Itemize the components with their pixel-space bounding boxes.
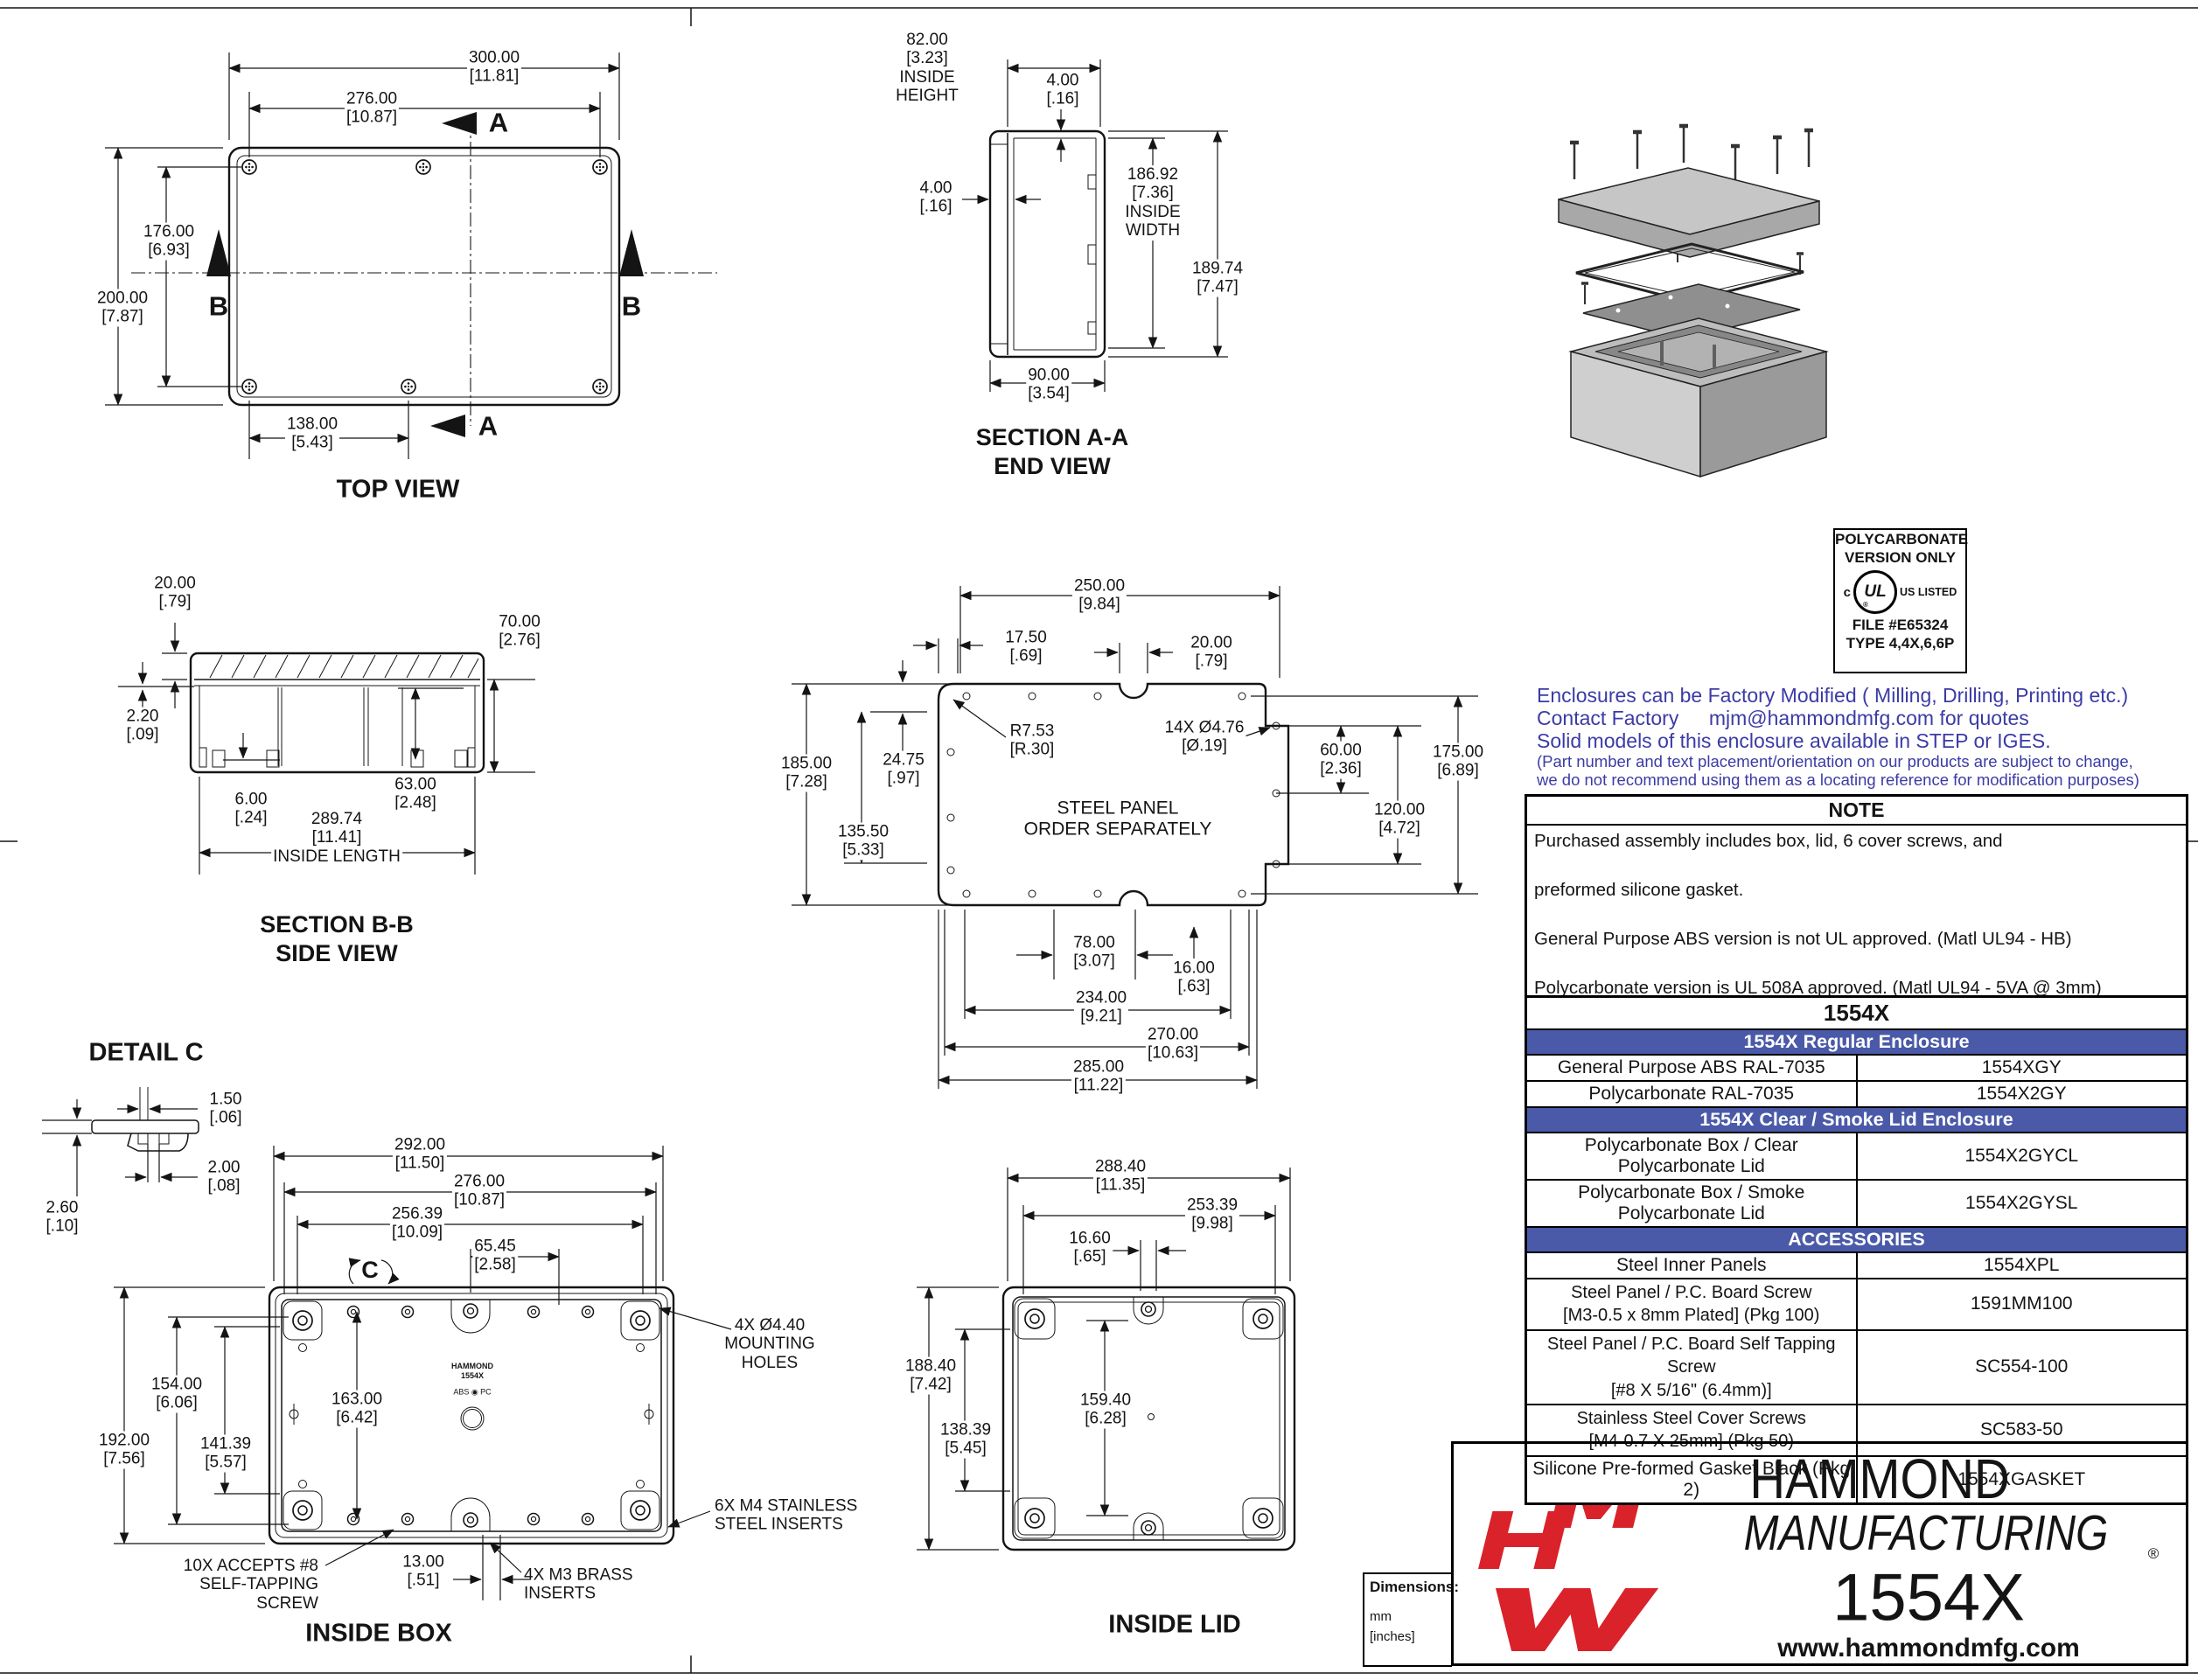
note-header: NOTE	[1527, 797, 2186, 826]
box-dim-13: 13.00 [.51]	[401, 1553, 446, 1591]
brand-manufacturing: MANUFACTURING	[1744, 1504, 2109, 1562]
ul-letters: UL	[1864, 582, 1886, 602]
part-desc: Steel Panel / P.C. Board Screw [M3-0.5 x…	[1526, 1279, 1857, 1330]
panel-dim-24-75: 24.75 [.97]	[881, 751, 926, 789]
ul-line1: POLYCARBONATE	[1835, 530, 1965, 548]
factory-modified-note: Enclosures can be Factory Modified ( Mil…	[1537, 684, 2191, 789]
lid-dim-16-6: 16.60 [.65]	[1067, 1230, 1113, 1267]
brand-product-number: 1554X	[1832, 1560, 2025, 1636]
detail-c-dim-2-6: 2.60 [.10]	[45, 1199, 80, 1237]
factory-note-line5: we do not recommend using them as a loca…	[1537, 770, 2191, 789]
panel-dim-285: 285.00 [11.22]	[1071, 1058, 1126, 1096]
top-view-dim-200: 200.00 [7.87]	[95, 289, 150, 327]
box-dim-154: 154.00 [6.06]	[150, 1376, 204, 1413]
box-molded-material: ABS ◉ PC	[451, 1388, 492, 1398]
aa-dim-depth: 90.00 [3.54]	[1026, 366, 1071, 404]
section-mark-b: B	[620, 290, 643, 321]
part-number: 1554X2GYSL	[1857, 1180, 2188, 1227]
detail-mark-c: C	[359, 1257, 380, 1284]
bb-dim-inside-length: 289.74 [11.41] INSIDE LENGTH	[271, 810, 402, 866]
lid-dim-253: 253.39 [9.98]	[1185, 1196, 1239, 1234]
exploded-view-drawing	[1559, 126, 1826, 477]
box-dim-141: 141.39 [5.57]	[199, 1435, 253, 1473]
callout-mounting-holes: 4X Ø4.40 MOUNTING HOLES	[722, 1316, 816, 1372]
factory-note-line4: (Part number and text placement/orientat…	[1537, 752, 2191, 770]
part-number: 1554X2GYCL	[1857, 1133, 2188, 1180]
panel-dim-185: 185.00 [7.28]	[779, 755, 834, 792]
lid-dim-188: 188.40 [7.42]	[904, 1357, 958, 1395]
top-view-dim-176: 176.00 [6.93]	[142, 223, 196, 261]
datasheet-page: .o{stroke:#141414;stroke-width:2.4;fill:…	[0, 0, 2198, 1680]
panel-dim-78: 78.00 [3.07]	[1071, 934, 1117, 972]
part-desc: Polycarbonate Box / Smoke Polycarbonate …	[1526, 1180, 1857, 1227]
ul-file: FILE #E65324	[1835, 616, 1965, 634]
ul-c: c	[1844, 585, 1851, 600]
panel-dim-radius: R7.53 [R.30]	[1008, 722, 1057, 760]
box-dim-276: 276.00 [10.87]	[452, 1173, 506, 1210]
box-dim-256: 256.39 [10.09]	[390, 1205, 444, 1243]
inside-box-title: INSIDE BOX	[304, 1620, 454, 1649]
lid-dim-159: 159.40 [6.28]	[1078, 1391, 1133, 1429]
aa-dim-inside-width: 186.92 [7.36] INSIDE WIDTH	[1123, 165, 1182, 240]
aa-dim-inside-height: 82.00 [3.23] INSIDE HEIGHT	[894, 31, 960, 106]
callout-m4-inserts: 6X M4 STAINLESS STEEL INSERTS	[713, 1497, 859, 1535]
detail-c-dim-2: 2.00 [.08]	[206, 1159, 242, 1196]
dimensions-title: Dimensions:	[1370, 1579, 1447, 1596]
part-number-table: 1554X 1554X Regular Enclosure General Pu…	[1525, 995, 2188, 1505]
panel-dim-16: 16.00 [.63]	[1171, 959, 1217, 997]
panel-dim-20: 20.00 [.79]	[1189, 634, 1234, 672]
panel-dim-120: 120.00 [4.72]	[1372, 801, 1427, 839]
note-line2: preformed silicone gasket.	[1534, 880, 1743, 900]
inside-lid-title: INSIDE LID	[1106, 1611, 1242, 1640]
section-mark-b: B	[207, 290, 230, 321]
bb-dim-inner-height: 63.00 [2.48]	[393, 776, 438, 813]
top-view-dim-276: 276.00 [10.87]	[345, 90, 399, 128]
callout-m3-inserts: 4X M3 BRASS INSERTS	[522, 1566, 635, 1604]
section-aa-subtitle: END VIEW	[992, 453, 1113, 480]
top-view-dim-138: 138.00 [5.43]	[285, 415, 339, 453]
factory-note-line2: Contact Factory mjm@hammondmfg.com for q…	[1537, 707, 2191, 729]
panel-dim-270: 270.00 [10.63]	[1146, 1026, 1200, 1063]
parts-section-regular: 1554X Regular Enclosure	[1526, 1029, 2188, 1055]
box-dim-192: 192.00 [7.56]	[97, 1432, 151, 1469]
panel-dim-17-5: 17.50 [.69]	[1003, 629, 1049, 666]
dimensions-units-box: Dimensions: mm [inches]	[1363, 1572, 1452, 1667]
top-view-title: TOP VIEW	[335, 476, 462, 505]
panel-dim-175: 175.00 [6.89]	[1431, 743, 1485, 781]
ul-type: TYPE 4,4X,6,6P	[1835, 634, 1965, 652]
box-dim-292: 292.00 [11.50]	[393, 1136, 447, 1174]
aa-dim-overall-width: 189.74 [7.47]	[1190, 260, 1245, 297]
detail-c-dim-1-5: 1.50 [.06]	[208, 1091, 244, 1128]
ul-line2: VERSION ONLY	[1835, 548, 1965, 567]
bb-dim-box-height: 70.00 [2.76]	[497, 613, 542, 651]
box-dim-65: 65.45 [2.58]	[472, 1237, 518, 1275]
dimensions-unit-mm: mm	[1370, 1607, 1447, 1627]
part-desc: Steel Panel / P.C. Board Self Tapping Sc…	[1526, 1330, 1857, 1405]
part-number: 1554XGY	[1857, 1055, 2188, 1081]
section-mark-a: A	[477, 410, 499, 441]
aa-dim-wall-top: 4.00 [.16]	[1045, 72, 1081, 109]
part-number: SC554-100	[1857, 1330, 2188, 1405]
part-number: 1554X2GY	[1857, 1081, 2188, 1107]
callout-self-tapping: 10X ACCEPTS #8 SELF-TAPPING SCREW	[182, 1557, 320, 1613]
panel-dim-60: 60.00 [2.36]	[1318, 742, 1364, 779]
note-body: Purchased assembly includes box, lid, 6 …	[1527, 826, 2186, 1007]
ul-logo-icon: UL®	[1853, 570, 1897, 614]
panel-dim-250: 250.00 [9.84]	[1072, 577, 1127, 615]
box-dim-163: 163.00 [6.42]	[330, 1391, 384, 1428]
bb-dim-gasket: 2.20 [.09]	[125, 708, 161, 745]
panel-dim-135-5: 135.50 [5.33]	[836, 823, 890, 861]
panel-dim-234: 234.00 [9.21]	[1074, 989, 1128, 1027]
part-desc: General Purpose ABS RAL-7035	[1526, 1055, 1857, 1081]
part-number: 1591MM100	[1857, 1279, 2188, 1330]
section-aa-drawing	[962, 59, 1228, 392]
section-aa-title: SECTION A-A	[974, 424, 1131, 451]
part-number: 1554XPL	[1857, 1252, 2188, 1279]
detail-c-drawing	[42, 1087, 199, 1196]
section-bb-title: SECTION B-B	[258, 911, 415, 938]
detail-c-title: DETAIL C	[87, 1039, 205, 1068]
bb-dim-floor: 6.00 [.24]	[234, 791, 269, 828]
note-line3: General Purpose ABS version is not UL ap…	[1534, 929, 2072, 949]
parts-section-clear-smoke: 1554X Clear / Smoke Lid Enclosure	[1526, 1107, 2188, 1133]
bb-dim-lid: 20.00 [.79]	[152, 575, 198, 612]
ul-reg: ®	[1863, 601, 1868, 609]
top-view-drawing	[105, 52, 717, 459]
lid-dim-288: 288.40 [11.35]	[1093, 1158, 1148, 1196]
panel-dim-holes: 14X Ø4.76 [Ø.19]	[1163, 719, 1246, 756]
brand-hammond: HAMMOND	[1749, 1446, 2009, 1511]
note-line1: Purchased assembly includes box, lid, 6 …	[1534, 831, 2003, 851]
parts-section-accessories: ACCESSORIES	[1526, 1227, 2188, 1252]
section-mark-a: A	[487, 107, 510, 137]
part-desc: Polycarbonate Box / Clear Polycarbonate …	[1526, 1133, 1857, 1180]
box-molded-brand: HAMMOND 1554X	[450, 1362, 495, 1381]
brand-website: www.hammondmfg.com	[1777, 1634, 2080, 1663]
panel-order-note: STEEL PANEL ORDER SEPARATELY	[1022, 798, 1214, 839]
ul-us-listed: US LISTED	[1900, 586, 1957, 598]
factory-note-line3: Solid models of this enclosure available…	[1537, 729, 2191, 752]
ul-listing-box: POLYCARBONATE VERSION ONLY c UL® US LIST…	[1833, 528, 1967, 673]
parts-title: 1554X	[1526, 997, 2188, 1030]
brand-registered-icon: ®	[2148, 1545, 2160, 1563]
section-bb-subtitle: SIDE VIEW	[274, 940, 400, 967]
part-desc: Steel Inner Panels	[1526, 1252, 1857, 1279]
aa-dim-wall-side: 4.00 [.16]	[918, 179, 954, 217]
top-view-dim-300: 300.00 [11.81]	[467, 49, 521, 87]
dimensions-unit-inches: [inches]	[1370, 1627, 1447, 1647]
factory-note-line1: Enclosures can be Factory Modified ( Mil…	[1537, 684, 2191, 707]
lid-dim-138: 138.39 [5.45]	[939, 1421, 993, 1459]
part-desc: Polycarbonate RAL-7035	[1526, 1081, 1857, 1107]
footer-brand-panel: HAMMOND MANUFACTURING ® 1554X www.hammon…	[1451, 1441, 2188, 1666]
